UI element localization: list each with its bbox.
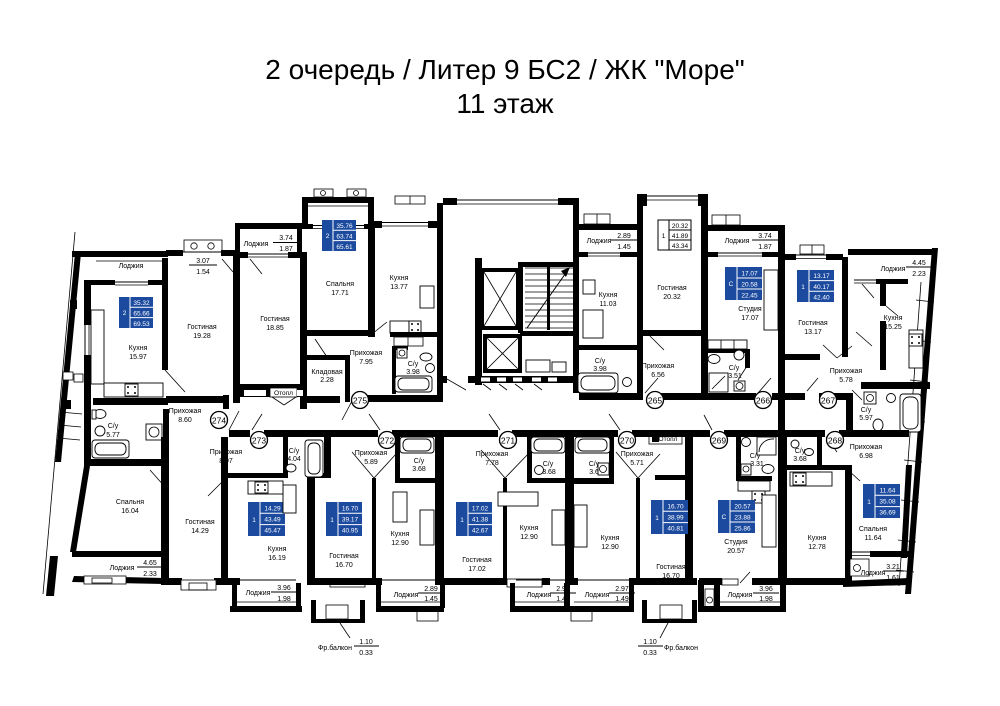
svg-text:273: 273: [252, 436, 266, 446]
svg-text:16.70: 16.70: [342, 506, 359, 513]
svg-text:Студия: Студия: [738, 306, 762, 313]
svg-text:12.90: 12.90: [520, 534, 538, 541]
svg-text:16.19: 16.19: [268, 555, 286, 562]
svg-text:Спальня: Спальня: [326, 281, 354, 288]
svg-text:40.17: 40.17: [813, 284, 830, 291]
svg-text:15.25: 15.25: [884, 324, 902, 331]
svg-text:Лоджия: Лоджия: [119, 263, 144, 270]
svg-text:Кухня: Кухня: [884, 315, 903, 322]
svg-text:35.76: 35.76: [336, 223, 353, 230]
svg-text:14.29: 14.29: [191, 528, 209, 535]
svg-text:1.45: 1.45: [424, 596, 438, 603]
svg-text:13.77: 13.77: [390, 284, 408, 291]
svg-text:3.98: 3.98: [593, 366, 607, 373]
svg-text:16.70: 16.70: [667, 504, 684, 511]
svg-text:274: 274: [212, 416, 226, 426]
svg-text:272: 272: [380, 436, 394, 446]
svg-text:Лоджия: Лоджия: [110, 565, 135, 572]
svg-text:275: 275: [353, 396, 367, 406]
svg-text:Прихожая: Прихожая: [642, 363, 675, 370]
svg-text:1.49: 1.49: [615, 596, 629, 603]
svg-text:Лоджия: Лоджия: [246, 590, 271, 597]
svg-text:3.74: 3.74: [758, 233, 772, 240]
svg-text:69.53: 69.53: [133, 321, 150, 328]
svg-text:17.71: 17.71: [331, 290, 349, 297]
svg-text:3.07: 3.07: [196, 258, 210, 265]
svg-text:Гостиная: Гостиная: [260, 316, 290, 323]
svg-text:20.57: 20.57: [727, 548, 745, 555]
svg-text:63.74: 63.74: [336, 234, 353, 241]
svg-text:0.33: 0.33: [359, 650, 373, 657]
svg-text:Гостиная: Гостиная: [462, 557, 492, 564]
svg-text:3.98: 3.98: [406, 369, 420, 376]
svg-text:43.34: 43.34: [672, 243, 689, 250]
svg-text:Кухня: Кухня: [390, 275, 409, 282]
svg-text:5.78: 5.78: [839, 377, 853, 384]
svg-text:3.96: 3.96: [277, 585, 291, 592]
svg-text:Гостиная: Гостиная: [656, 564, 686, 571]
svg-text:Прихожая: Прихожая: [350, 350, 383, 357]
svg-text:Гостиная: Гостиная: [187, 324, 217, 331]
svg-text:13.17: 13.17: [804, 329, 822, 336]
svg-text:Гостиная: Гостиная: [798, 320, 828, 327]
svg-text:Кухня: Кухня: [601, 535, 620, 542]
svg-text:267: 267: [821, 396, 835, 406]
svg-text:5.97: 5.97: [859, 415, 873, 422]
svg-text:Лоджия: Лоджия: [725, 238, 750, 245]
svg-text:41.89: 41.89: [672, 233, 689, 240]
svg-text:3.21: 3.21: [886, 564, 900, 571]
svg-text:Прихожая: Прихожая: [169, 408, 202, 415]
svg-text:3.68: 3.68: [542, 469, 556, 476]
svg-text:11.64: 11.64: [880, 488, 896, 495]
svg-text:40.95: 40.95: [342, 528, 359, 535]
svg-text:С/у: С/у: [543, 461, 554, 468]
svg-text:12.78: 12.78: [808, 544, 826, 551]
svg-text:Спальня: Спальня: [859, 526, 887, 533]
svg-text:С/у: С/у: [408, 361, 419, 368]
svg-text:2 очередь / Литер 9 БС2 / ЖК ": 2 очередь / Литер 9 БС2 / ЖК "Море": [265, 54, 744, 85]
svg-text:20.57: 20.57: [734, 504, 751, 511]
svg-text:4.45: 4.45: [912, 260, 926, 267]
svg-text:Прихожая: Прихожая: [850, 444, 883, 451]
svg-text:45.47: 45.47: [264, 528, 281, 535]
svg-text:3.68: 3.68: [793, 456, 807, 463]
svg-text:19.28: 19.28: [193, 333, 211, 340]
svg-text:18.85: 18.85: [266, 325, 284, 332]
svg-text:5.89: 5.89: [364, 459, 378, 466]
svg-text:269: 269: [712, 436, 726, 446]
svg-text:Лоджия: Лоджия: [587, 238, 612, 245]
svg-text:271: 271: [501, 436, 515, 446]
svg-text:Гостиная: Гостиная: [329, 553, 359, 560]
svg-text:6.56: 6.56: [651, 372, 665, 379]
svg-text:12.90: 12.90: [391, 540, 409, 547]
svg-text:2: 2: [123, 310, 127, 317]
svg-text:268: 268: [828, 436, 842, 446]
svg-text:Кухня: Кухня: [599, 292, 618, 299]
svg-text:1.10: 1.10: [643, 639, 657, 646]
svg-text:Кухня: Кухня: [268, 546, 287, 553]
svg-text:2.89: 2.89: [617, 233, 631, 240]
svg-text:65.66: 65.66: [133, 311, 150, 318]
svg-text:1: 1: [867, 499, 871, 506]
svg-text:1: 1: [330, 517, 334, 524]
svg-text:42.40: 42.40: [813, 295, 830, 302]
svg-text:Гостиная: Гостиная: [185, 519, 215, 526]
svg-text:3.74: 3.74: [279, 235, 293, 242]
svg-text:С/у: С/у: [861, 407, 872, 414]
svg-text:2: 2: [326, 233, 330, 240]
svg-text:Фр.балкон: Фр.балкон: [664, 644, 698, 652]
svg-text:Кухня: Кухня: [808, 535, 827, 542]
svg-text:Кухня: Кухня: [520, 525, 539, 532]
svg-text:35.08: 35.08: [879, 499, 896, 506]
svg-text:1.87: 1.87: [279, 246, 293, 253]
svg-text:20.58: 20.58: [741, 282, 758, 289]
svg-text:266: 266: [756, 396, 770, 406]
svg-text:2.33: 2.33: [143, 571, 157, 578]
svg-text:Прихожая: Прихожая: [621, 451, 654, 458]
svg-text:6.98: 6.98: [859, 453, 873, 460]
svg-text:41.38: 41.38: [472, 517, 489, 524]
svg-text:4.65: 4.65: [143, 560, 157, 567]
svg-text:11 этаж: 11 этаж: [456, 88, 554, 119]
svg-text:Отопл: Отопл: [274, 390, 293, 397]
svg-text:270: 270: [620, 436, 634, 446]
svg-text:20.32: 20.32: [672, 223, 689, 230]
svg-text:Спальня: Спальня: [116, 499, 144, 506]
svg-text:8.60: 8.60: [178, 417, 192, 424]
svg-text:15.97: 15.97: [129, 354, 147, 361]
svg-text:С: С: [722, 514, 727, 521]
svg-text:4.04: 4.04: [287, 456, 301, 463]
svg-text:Лоджия: Лоджия: [394, 592, 419, 599]
svg-text:Кладовая: Кладовая: [311, 369, 343, 376]
svg-text:3.68: 3.68: [412, 466, 426, 473]
svg-text:1.45: 1.45: [617, 244, 631, 251]
svg-text:5.71: 5.71: [630, 460, 644, 467]
svg-text:14.29: 14.29: [264, 506, 281, 513]
svg-text:38.99: 38.99: [667, 515, 684, 522]
svg-text:С/у: С/у: [595, 358, 606, 365]
svg-text:13.17: 13.17: [813, 273, 830, 280]
svg-text:43.49: 43.49: [264, 517, 281, 524]
svg-text:2.23: 2.23: [912, 271, 926, 278]
svg-text:С/у: С/у: [729, 365, 740, 372]
svg-text:23.88: 23.88: [734, 515, 751, 522]
svg-text:Лоджия: Лоджия: [244, 241, 269, 248]
svg-text:1.98: 1.98: [759, 596, 773, 603]
svg-text:17.02: 17.02: [468, 566, 486, 573]
svg-text:17.07: 17.07: [741, 315, 759, 322]
svg-text:1.10: 1.10: [359, 639, 373, 646]
svg-text:С/у: С/у: [108, 423, 119, 430]
svg-text:Лоджия: Лоджия: [527, 592, 552, 599]
svg-text:11.64: 11.64: [865, 535, 882, 542]
svg-text:265: 265: [648, 396, 662, 406]
svg-text:1: 1: [460, 517, 464, 524]
svg-text:0.33: 0.33: [643, 650, 657, 657]
svg-text:16.70: 16.70: [335, 562, 353, 569]
svg-text:1: 1: [801, 284, 805, 291]
svg-text:1.87: 1.87: [758, 244, 772, 251]
svg-text:22.45: 22.45: [741, 293, 758, 300]
svg-text:17.02: 17.02: [472, 506, 489, 513]
svg-text:65.61: 65.61: [336, 244, 353, 251]
svg-text:С: С: [729, 281, 734, 288]
svg-text:1.54: 1.54: [196, 269, 210, 276]
svg-text:Лоджия: Лоджия: [728, 592, 753, 599]
svg-text:12.90: 12.90: [601, 544, 619, 551]
svg-text:2.89: 2.89: [424, 586, 438, 593]
svg-text:42.67: 42.67: [472, 528, 489, 535]
svg-text:3.96: 3.96: [759, 586, 773, 593]
svg-text:3.31: 3.31: [750, 461, 764, 468]
svg-text:2.28: 2.28: [320, 377, 334, 384]
svg-text:Кухня: Кухня: [391, 531, 410, 538]
svg-text:Прихожая: Прихожая: [355, 450, 388, 457]
svg-text:5.77: 5.77: [106, 432, 120, 439]
svg-text:2.97: 2.97: [615, 586, 629, 593]
svg-text:Прихожая: Прихожая: [830, 368, 863, 375]
svg-text:С/у: С/у: [414, 458, 425, 465]
svg-text:Кухня: Кухня: [129, 345, 148, 352]
svg-text:1: 1: [252, 517, 256, 524]
svg-text:1.98: 1.98: [277, 596, 291, 603]
svg-text:Прихожая: Прихожая: [476, 451, 509, 458]
svg-text:Лоджия: Лоджия: [585, 592, 610, 599]
svg-text:39.17: 39.17: [342, 517, 359, 524]
svg-text:16.04: 16.04: [121, 508, 139, 515]
svg-text:20.32: 20.32: [663, 294, 681, 301]
svg-text:1: 1: [655, 515, 659, 522]
svg-text:Отопл: Отопл: [659, 436, 678, 443]
svg-text:11.03: 11.03: [600, 301, 617, 308]
svg-text:40.81: 40.81: [667, 526, 684, 533]
svg-text:Студия: Студия: [724, 539, 748, 546]
svg-text:Лоджия: Лоджия: [861, 570, 886, 577]
svg-text:36.69: 36.69: [879, 510, 896, 517]
svg-text:25.86: 25.86: [734, 526, 751, 533]
svg-text:1: 1: [662, 233, 666, 240]
svg-text:С/у: С/у: [289, 448, 300, 455]
svg-text:17.07: 17.07: [741, 271, 758, 278]
svg-text:Лоджия: Лоджия: [881, 266, 906, 273]
svg-text:Гостиная: Гостиная: [657, 285, 687, 292]
svg-text:7.95: 7.95: [359, 359, 373, 366]
svg-text:35.32: 35.32: [133, 300, 150, 307]
svg-text:Фр.балкон: Фр.балкон: [318, 644, 352, 652]
